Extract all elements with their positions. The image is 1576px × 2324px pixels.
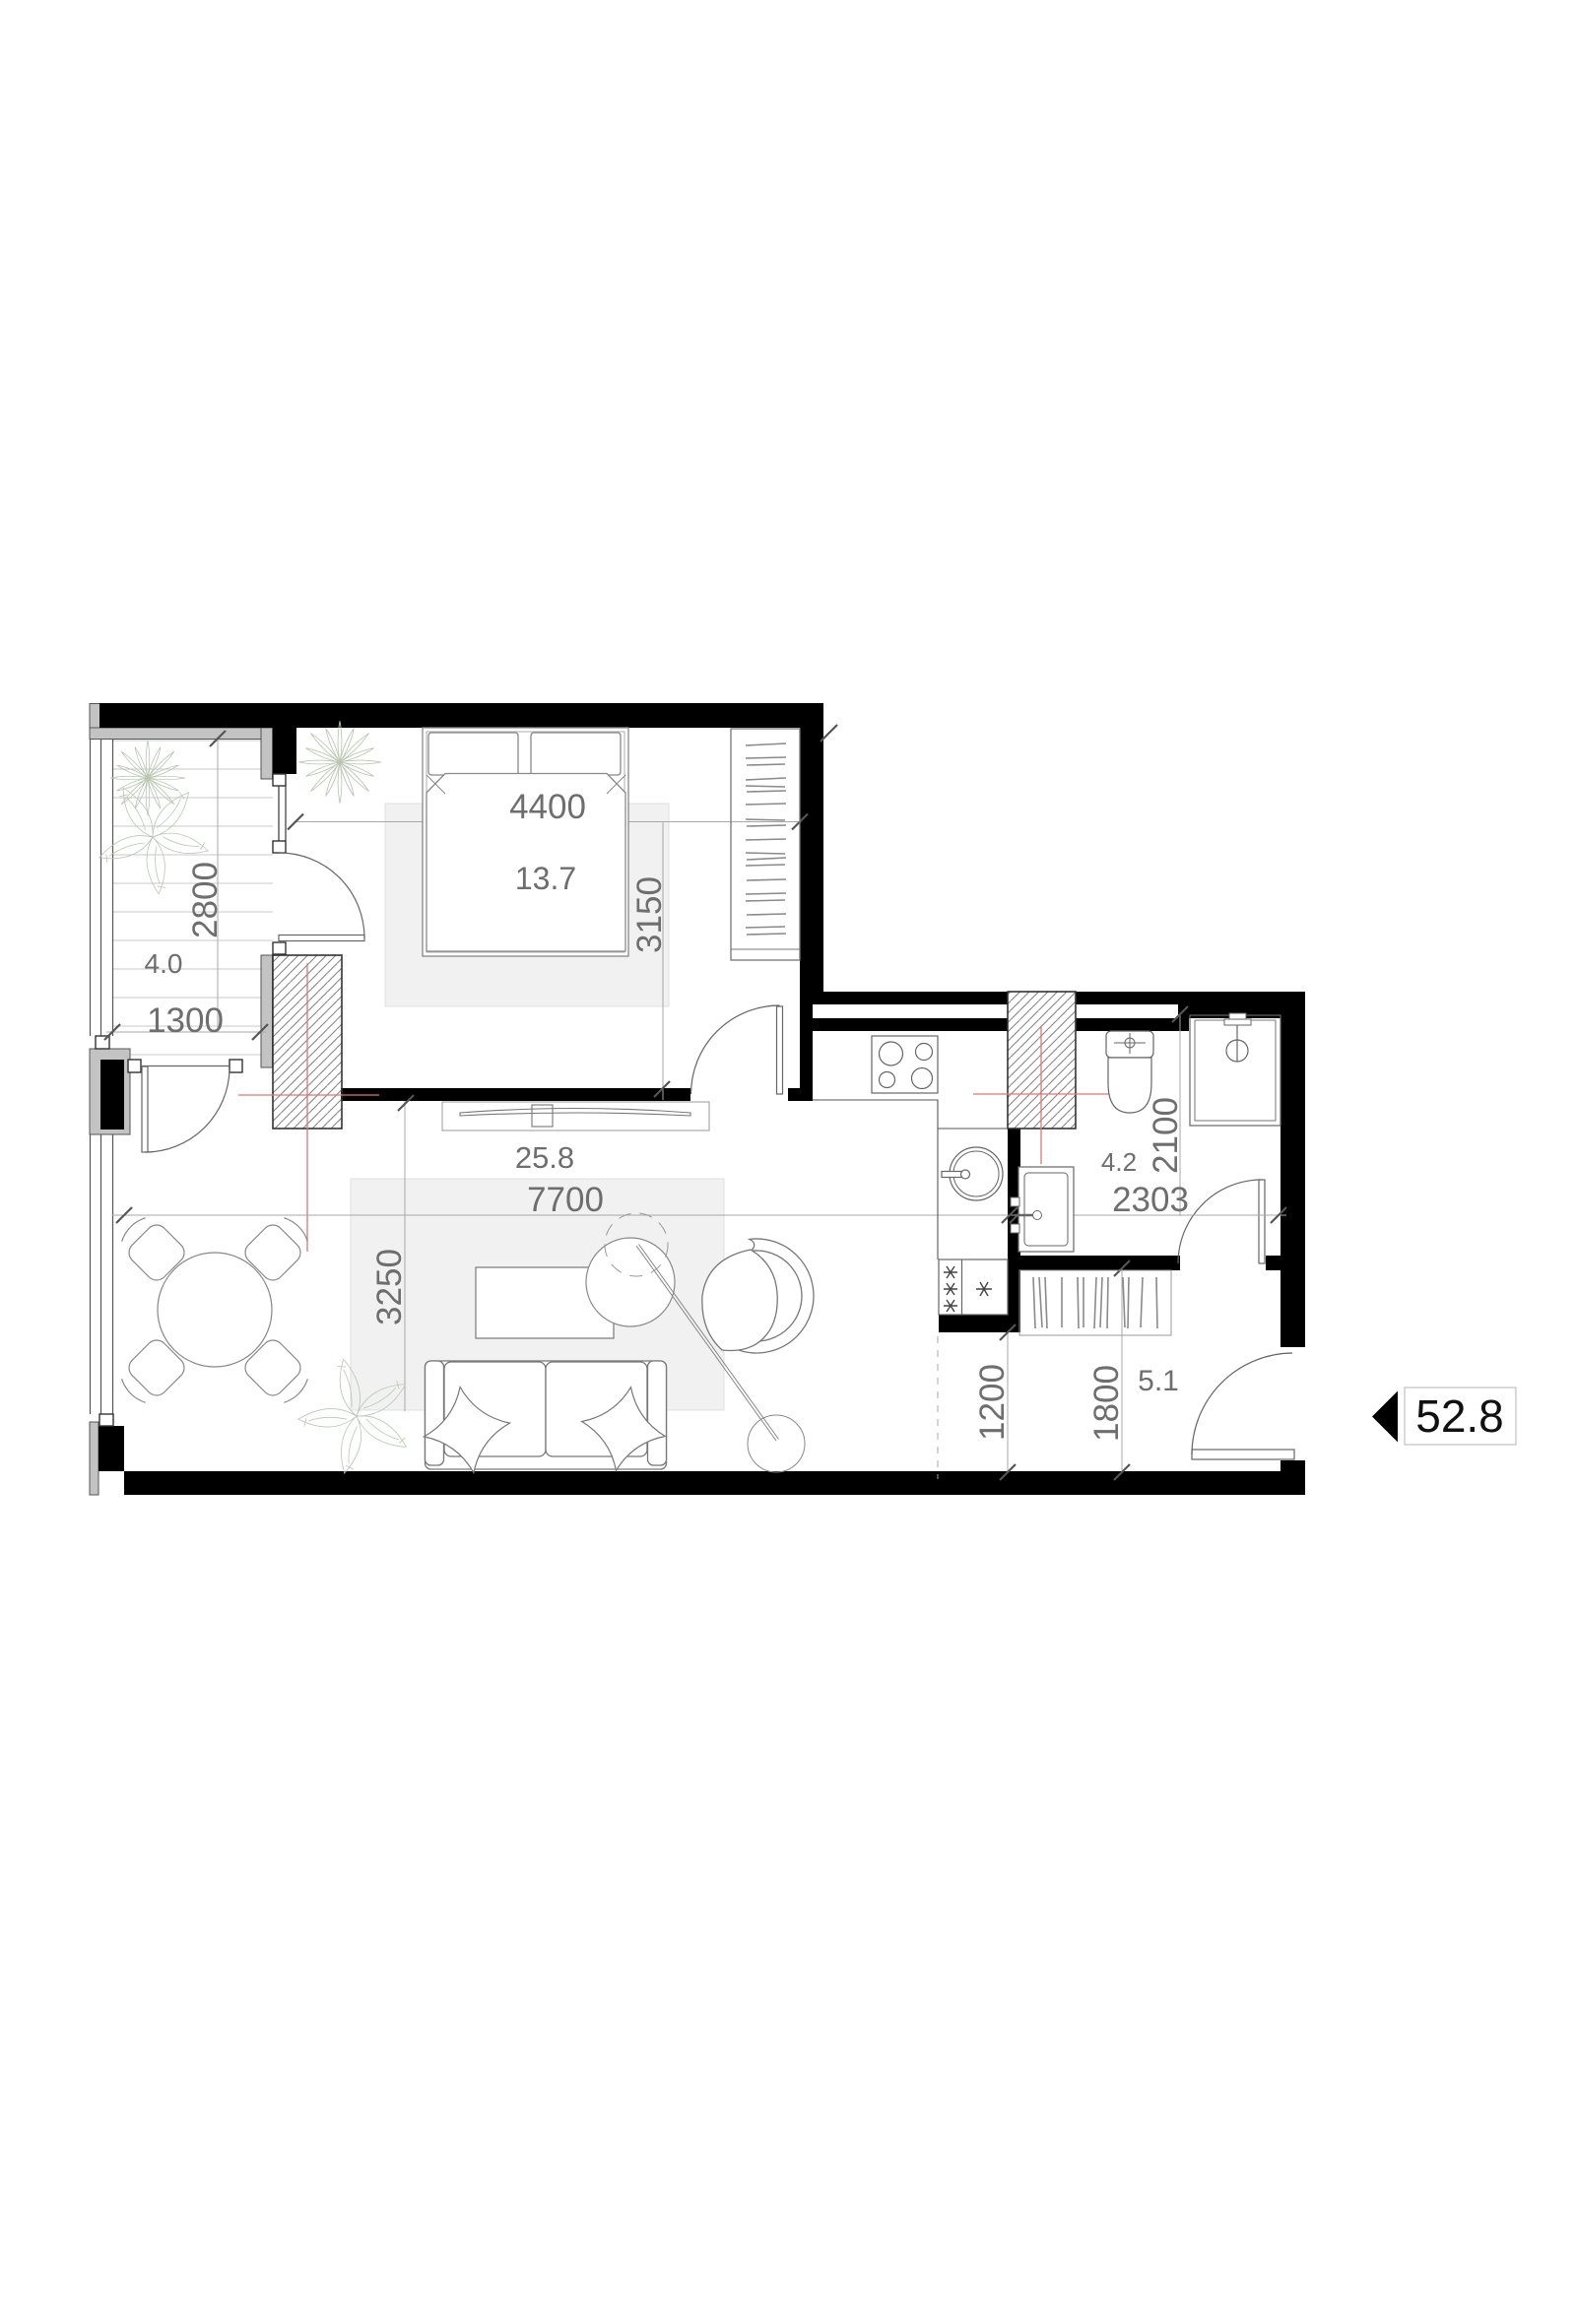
svg-text:3250: 3250: [370, 1249, 409, 1325]
svg-text:13.7: 13.7: [515, 861, 576, 896]
svg-text:2800: 2800: [186, 862, 225, 938]
svg-text:1300: 1300: [147, 1001, 224, 1040]
svg-text:2303: 2303: [1112, 1181, 1189, 1219]
svg-text:7700: 7700: [527, 1181, 604, 1219]
svg-text:4.2: 4.2: [1101, 1147, 1137, 1177]
svg-text:25.8: 25.8: [515, 1140, 574, 1175]
svg-text:5.1: 5.1: [1138, 1365, 1179, 1397]
svg-text:3150: 3150: [630, 876, 669, 953]
svg-text:1200: 1200: [973, 1364, 1012, 1441]
svg-text:1800: 1800: [1087, 1365, 1126, 1442]
svg-text:4400: 4400: [509, 788, 586, 826]
svg-text:2100: 2100: [1147, 1097, 1185, 1174]
svg-text:4.0: 4.0: [145, 948, 183, 979]
svg-text:52.8: 52.8: [1415, 1390, 1504, 1442]
